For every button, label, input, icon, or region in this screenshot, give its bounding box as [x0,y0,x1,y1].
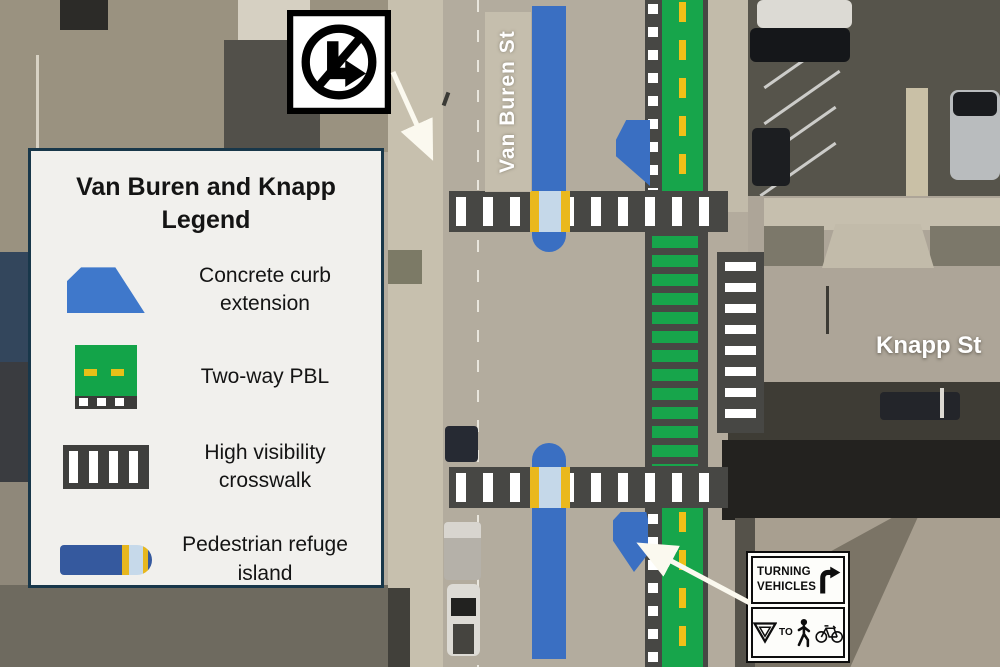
right-turn-arrow-icon [816,562,843,598]
building-shadow [0,362,28,482]
building-edge [388,588,410,667]
parked-car-dark [750,28,850,62]
crosswalk-stripes [725,262,756,424]
roof-edge [36,55,39,150]
legend-title-line2: Legend [31,204,381,237]
legend-item-label: Pedestrian refuge island [165,531,365,588]
grass-patch [388,250,422,284]
bike-crossing-bars [652,236,698,466]
pbl-edge-strip [703,508,708,667]
car-roof [953,92,997,116]
truck-roof [451,598,476,616]
pedestrian-icon [795,617,813,649]
turning-vehicles-text: TURNING VEHICLES [753,565,816,595]
high-visibility-crosswalk-icon [47,445,165,489]
legend-item-label: Two-way PBL [165,363,365,391]
crosswalk-north [449,191,728,232]
crosswalk-stripes [456,473,720,502]
truck-cab [444,522,481,538]
knapp-street-label: Knapp St [876,332,981,360]
crosswalk-knapp [717,252,764,433]
legend-item-refuge-island: Pedestrian refuge island [31,531,381,588]
bicycle-icon [815,621,843,645]
vehicles-text: VEHICLES [757,580,816,595]
turning-vehicles-sign: TURNING VEHICLES TO [746,551,850,663]
legend-item-label: Concrete curb extension [165,262,365,319]
refuge-cut-through [530,467,570,508]
parked-car-dark [752,128,790,186]
yield-icon [753,620,777,645]
yield-to-panel: TO [751,607,845,658]
building-roof-sliver [0,152,28,252]
pbl-edge-strip [703,0,708,192]
van-buren-street-label: Van Buren St [485,12,531,192]
dotted-edge-line [648,514,658,664]
no-right-turn-icon [287,10,391,114]
two-way-pbl-south [662,508,703,667]
bike-crossing-band [645,192,708,508]
legend-panel: Van Buren and Knapp Legend Concrete curb… [28,148,384,588]
two-way-pbl-icon [47,345,165,409]
turning-vehicles-panel: TURNING VEHICLES [751,556,845,604]
no-right-turn-sign [287,10,391,114]
aerial-map: Van Buren St Knapp St TURNING VEHICLES [0,0,1000,667]
parked-car-white [757,0,852,28]
legend-item-crosswalk: High visibility crosswalk [31,439,381,496]
curb-extension-icon [47,267,165,313]
driveway-apron [822,224,934,268]
truck-bed [453,624,474,654]
center-dash-line [679,512,686,664]
roof-structure [60,0,108,30]
east-sidewalk [708,0,748,212]
building-roof-bottom-left [0,585,392,667]
parked-car-dark [880,392,960,420]
lane-line [477,0,479,190]
grass-patch [764,226,824,266]
building-wall [0,252,28,362]
walkway-strip [906,88,928,200]
legend-title: Van Buren and Knapp Legend [31,171,381,236]
crosswalk-stripes [456,197,720,226]
building-roof-dark [722,440,1000,520]
light-pole [940,388,944,418]
to-text: TO [779,627,793,638]
van-buren-label-band: Van Buren St [485,12,531,192]
legend-title-line1: Van Buren and Knapp [31,171,381,204]
legend-item-two-way-pbl: Two-way PBL [31,345,381,409]
legend-item-label: High visibility crosswalk [165,439,365,496]
center-dash-line [679,2,686,190]
west-sidewalk [388,0,443,667]
utility-pole [826,286,829,334]
turning-text: TURNING [757,565,816,580]
crosswalk-south [449,467,728,508]
pedestrian-refuge-island-icon [47,545,165,575]
refuge-cut-through [530,191,570,232]
building-roof-sliver [0,482,28,585]
two-way-pbl-north [662,0,703,192]
car-dark [445,426,478,462]
legend-item-curb-extension: Concrete curb extension [31,262,381,319]
grass-patch [930,226,1000,266]
